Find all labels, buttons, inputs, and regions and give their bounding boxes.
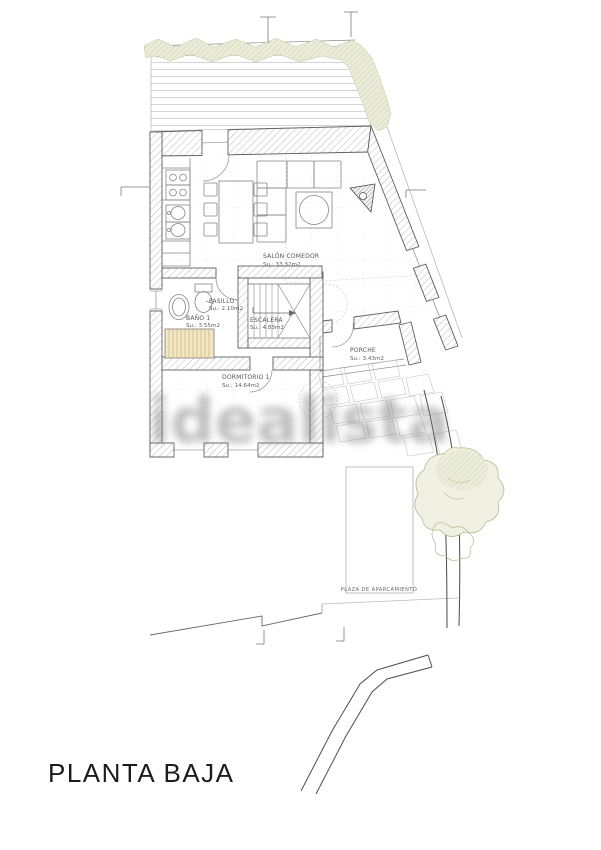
wall-top-right [228,126,371,155]
closet [165,329,214,358]
door-bath [216,278,238,300]
door-jambs-terrace [202,130,228,156]
section-marker-bottom-1 [256,630,264,644]
escalera-label: ESCALERA [250,317,283,324]
parking-space [346,467,413,593]
porche-area: Su.: 3.43m2 [350,356,384,362]
section-marker-left [121,187,149,196]
toilet-tank [195,284,212,292]
section-marker-bottom-2 [336,627,344,641]
parking-label: PLAZA DE APARCAMIENTO [341,587,418,593]
salon-label: SALÓN COMEDOR [263,253,319,260]
bano-label: BAÑO 1 [186,315,210,322]
road [301,655,432,794]
wall-bath-top [162,268,216,278]
wall-dorm-top-a [162,357,250,370]
fireplace-flue [360,193,367,200]
terrace-deck [151,50,371,131]
escalera-area: Su.: 4.83m2 [250,325,284,331]
bano-area: Su.: 3.55m2 [186,323,220,329]
pasillo-area: Su.: 2.10m2 [209,306,243,312]
wall-right-c [433,315,458,350]
wall-stair-bottom [248,337,310,348]
porche-label: PORCHE [350,347,376,354]
wall-left-a [150,132,162,289]
wall-porch-stub [399,322,421,365]
dormitorio-label: DORMITORIO 1 [222,374,270,381]
section-marker-right [406,190,426,198]
wall-stair-left [238,278,248,348]
page-title: PLANTA BAJA [48,758,235,788]
floorplan-drawing: SALÓN COMEDOR Su.: 33.32m2 PASILLO Su.: … [0,0,601,850]
section-marker-top-2 [344,12,358,37]
salon-area: Su.: 33.32m2 [263,262,301,268]
wall-dorm-top-b [273,357,323,370]
floorplan-page: SALÓN COMEDOR Su.: 33.32m2 PASILLO Su.: … [0,0,601,850]
window-bath [150,291,162,309]
wall-porch-a [323,320,332,333]
pasillo-label: PASILLO [209,298,235,305]
watermark: idealista [149,384,449,457]
